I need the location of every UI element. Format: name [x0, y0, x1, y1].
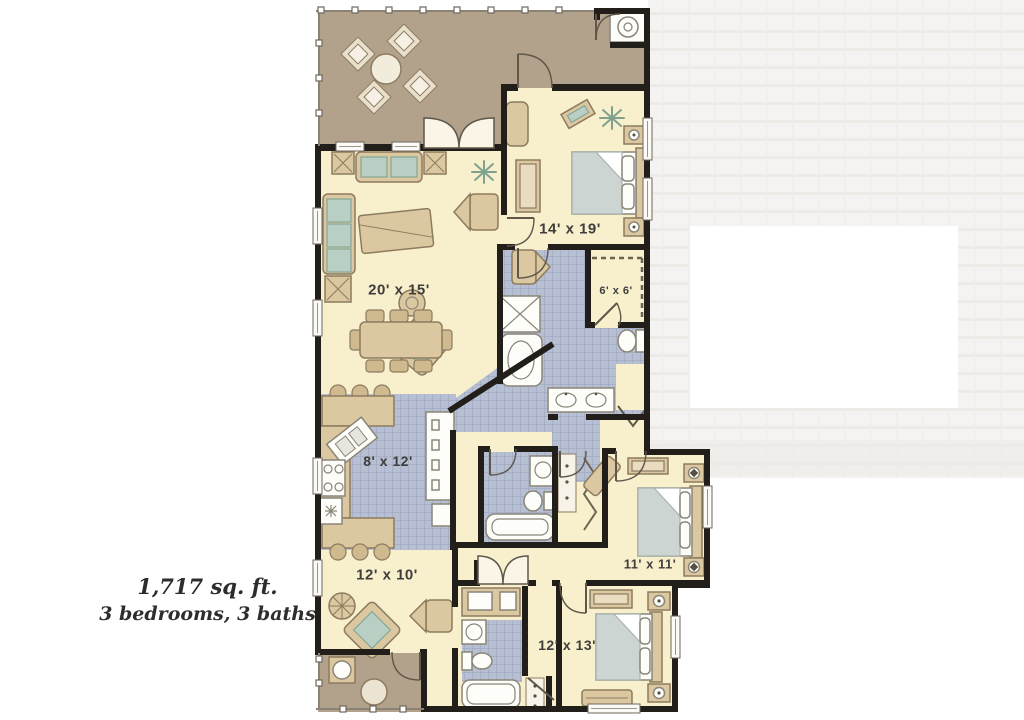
- bar-stool-icon: [330, 544, 346, 560]
- room-label-bedroom-3: 12' x 13': [538, 637, 596, 653]
- room-label-walk-in-closet: 6' x 6': [599, 285, 632, 297]
- window-icon: [313, 458, 322, 494]
- room-label-bedroom-2: 11' x 11': [624, 557, 677, 572]
- nightstand-icon: [684, 464, 704, 482]
- toilet-icon: [524, 491, 554, 511]
- pillow-icon: [680, 492, 690, 518]
- room-label-master-bedroom: 14' x 19': [539, 221, 601, 238]
- bathtub-icon: [462, 680, 520, 708]
- pedestal-sink-icon: [462, 620, 486, 644]
- window-icon: [671, 616, 680, 658]
- nightstand-icon: [684, 558, 704, 576]
- floorplan-canvas: 20' x 15' 14' x 19' 6' x 6' 8' x 12' 12'…: [0, 0, 1024, 720]
- window-icon: [313, 208, 322, 244]
- window-icon: [643, 118, 652, 160]
- bathtub-icon: [501, 334, 542, 386]
- deck-stool-icon: [361, 679, 387, 705]
- room-label-den: 12' x 10': [356, 567, 418, 584]
- toilet-icon: [462, 652, 492, 670]
- coffee-table-icon: [358, 208, 434, 253]
- window-icon: [313, 300, 322, 336]
- room-label-living: 20' x 15': [368, 282, 430, 299]
- side-table-icon: [325, 276, 351, 302]
- pillow-icon: [622, 184, 634, 209]
- window-icon: [703, 486, 712, 528]
- patio-table-icon: [371, 54, 401, 84]
- vanity-icon: [462, 588, 520, 616]
- nightstand-icon: [624, 126, 644, 144]
- dresser-icon: [516, 160, 540, 212]
- plan-caption: 1,717 sq. ft. 3 bedrooms, 3 baths: [95, 572, 320, 628]
- pillow-icon: [680, 522, 690, 548]
- dresser-icon: [590, 590, 632, 608]
- pillow-icon: [640, 618, 650, 644]
- chaise-icon: [506, 102, 528, 146]
- utility-closet: [610, 12, 646, 42]
- nightstand-icon: [648, 684, 670, 702]
- nightstand-icon: [624, 218, 644, 236]
- water-heater-icon: [618, 17, 638, 37]
- shower-icon: [500, 296, 540, 332]
- pillow-icon: [640, 648, 650, 674]
- nightstand-icon: [648, 592, 670, 610]
- toilet-icon: [618, 330, 648, 352]
- refrigerator-icon: [426, 412, 454, 500]
- caption-sqft: 1,717 sq. ft.: [95, 572, 320, 601]
- double-vanity-icon: [548, 388, 614, 412]
- plant-icon: [600, 107, 624, 129]
- backdrop-notch: [690, 226, 958, 408]
- round-table-icon: [329, 593, 355, 619]
- window-icon: [588, 704, 640, 713]
- side-table-icon: [424, 152, 446, 174]
- room-label-kitchen: 8' x 12': [363, 453, 413, 469]
- bar-stool-icon: [352, 544, 368, 560]
- bed-icon: [596, 612, 662, 682]
- pillow-icon: [622, 156, 634, 181]
- window-icon: [392, 142, 420, 151]
- dresser-icon: [628, 458, 668, 474]
- prep-sink-icon: [320, 498, 342, 524]
- side-table-icon: [332, 152, 354, 174]
- bathtub-icon: [486, 514, 554, 540]
- plant-icon: [472, 161, 496, 183]
- caption-bed-bath: 3 bedrooms, 3 baths: [95, 601, 320, 628]
- bed-icon: [638, 486, 702, 558]
- linen-closet: [616, 364, 648, 410]
- window-icon: [336, 142, 364, 151]
- stove-icon: [321, 460, 345, 496]
- bed-icon: [572, 148, 646, 218]
- window-icon: [643, 178, 652, 220]
- bar-stool-icon: [374, 544, 390, 560]
- deck-table-icon: [329, 657, 355, 683]
